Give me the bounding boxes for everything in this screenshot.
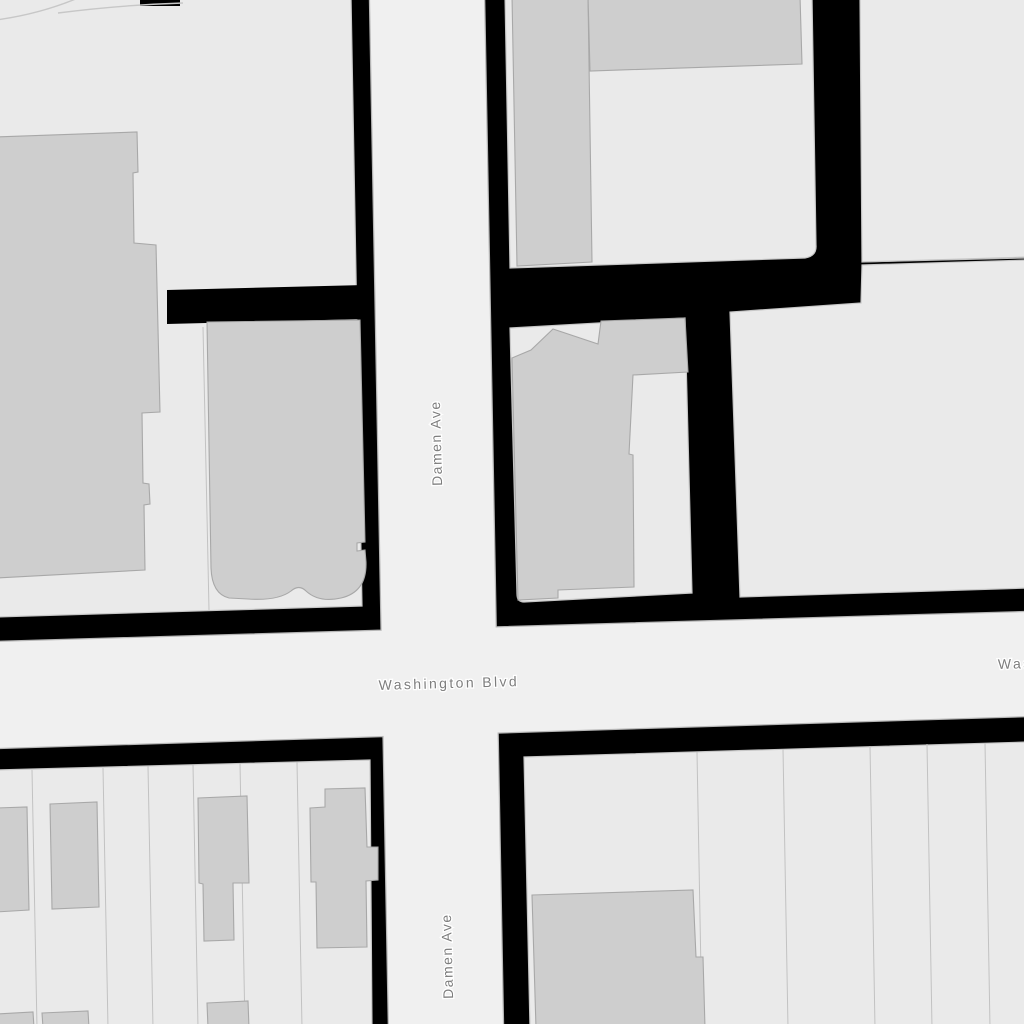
building [588,0,802,71]
building [42,1011,89,1024]
building [0,807,29,912]
alley-northwest [167,285,365,324]
block-northeast-upper [860,0,1024,262]
building [0,1012,34,1024]
building [207,1001,249,1024]
block-northeast-lower [730,260,1024,597]
street-label-damen-ave-north: Damen Ave [427,400,445,486]
street-label-washington-blvd-partial: Washington Blvd [998,652,1024,672]
street-label-damen-ave-south: Damen Ave [438,913,456,999]
map-canvas[interactable]: Damen Ave Damen Ave Washington Blvd Wash… [0,0,1024,1024]
building [532,890,705,1024]
building [50,802,99,909]
building [512,0,592,266]
map-render: Damen Ave Damen Ave Washington Blvd Wash… [0,0,1024,1024]
building [207,320,366,599]
road-damen-ave [370,0,503,1024]
